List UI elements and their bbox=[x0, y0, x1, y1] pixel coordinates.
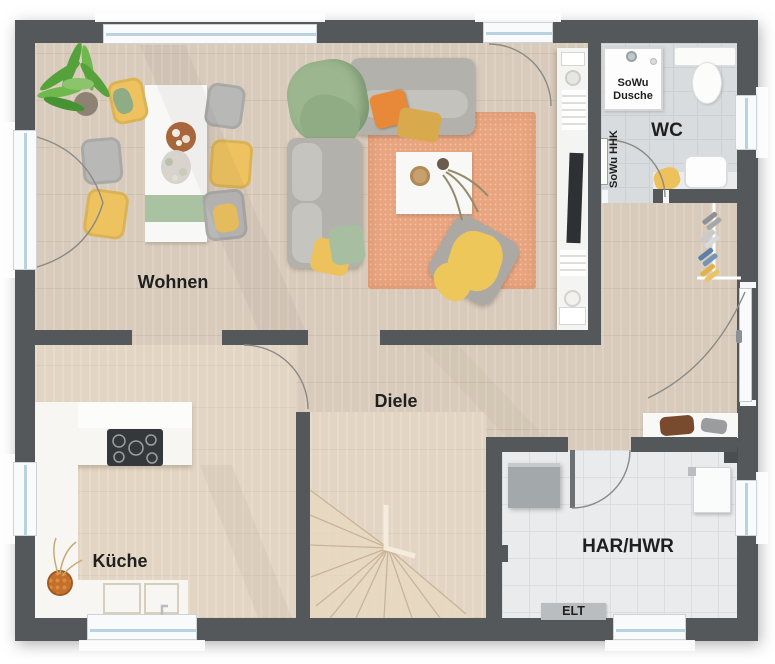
wall-har-north-b bbox=[631, 437, 737, 452]
window-right-har bbox=[735, 480, 757, 536]
shower-head-icon bbox=[626, 51, 637, 62]
wall-wohnen-south-b bbox=[222, 330, 308, 345]
har-door-leaf bbox=[570, 450, 575, 508]
window-right-wc bbox=[735, 95, 757, 150]
sofa-cushion bbox=[292, 143, 322, 201]
kitchen-base-unit bbox=[103, 583, 141, 614]
washing-machine bbox=[508, 463, 560, 508]
floor-stair-zone bbox=[310, 412, 486, 618]
door-jamb bbox=[602, 190, 608, 203]
entry-bag bbox=[659, 415, 695, 437]
wall-wohnen-south-c bbox=[380, 330, 601, 345]
sideboard-bowl bbox=[565, 70, 581, 86]
window-sill bbox=[605, 640, 695, 651]
room-label-kueche: Küche bbox=[70, 551, 170, 572]
annotation-elt: ELT bbox=[541, 604, 606, 618]
annotation-sowu-dusche: SoWu Dusche bbox=[603, 77, 663, 103]
window-sill bbox=[475, 12, 561, 22]
window-top-living bbox=[103, 24, 317, 44]
wall-wc-west bbox=[588, 43, 601, 345]
window-sill bbox=[79, 640, 205, 651]
sideboard-box bbox=[559, 307, 586, 325]
sideboard-books bbox=[562, 90, 586, 130]
wall-stair-west bbox=[296, 412, 310, 618]
window-sill bbox=[756, 87, 768, 158]
window-sill bbox=[95, 12, 325, 22]
annotation-sowu-hhk: SoWu HHK bbox=[608, 128, 621, 190]
coffee-table bbox=[396, 152, 472, 214]
cooktop bbox=[107, 429, 163, 466]
dining-chair bbox=[203, 82, 247, 131]
window-sill bbox=[756, 472, 768, 544]
room-label-diele: Diele bbox=[346, 391, 446, 412]
window-bottom-har bbox=[613, 614, 686, 640]
boiler-unit bbox=[693, 467, 731, 513]
window-left-kitchen bbox=[13, 462, 37, 536]
shower-drain bbox=[650, 58, 657, 65]
kitchen-base-unit bbox=[144, 583, 179, 614]
dining-chair bbox=[82, 187, 130, 240]
wc-sink bbox=[684, 155, 728, 189]
chair-pillow-yellow bbox=[212, 202, 240, 234]
room-label-har-hwr: HAR/HWR bbox=[558, 536, 698, 558]
door-jamb bbox=[663, 190, 669, 203]
sofa-pillow-green bbox=[328, 224, 367, 266]
terrace-door-top bbox=[483, 22, 553, 43]
coffee-table-bowl bbox=[410, 166, 430, 186]
annotation-line: SoWu bbox=[618, 77, 649, 89]
sideboard-box bbox=[561, 52, 585, 66]
toilet-bowl bbox=[692, 62, 722, 104]
front-door-handle bbox=[736, 330, 742, 343]
wall-har-north-a bbox=[486, 437, 568, 452]
sideboard-bowl bbox=[564, 290, 581, 307]
dining-chair bbox=[80, 136, 124, 185]
wall-wohnen-south-a bbox=[35, 330, 132, 345]
floorplan-canvas: Wohnen Diele Küche WC HAR/HWR SoWu Dusch… bbox=[0, 0, 775, 664]
coffee-table-pot bbox=[437, 158, 449, 170]
front-door-leaf bbox=[739, 288, 752, 402]
sideboard-books bbox=[560, 250, 586, 276]
room-label-wohnen: Wohnen bbox=[123, 272, 223, 293]
boiler-tab bbox=[688, 467, 696, 476]
fruit-bowl bbox=[47, 570, 73, 596]
wall-har-west bbox=[486, 440, 502, 618]
dining-chair bbox=[208, 139, 253, 190]
french-door-left bbox=[13, 130, 37, 270]
window-bottom-kitchen bbox=[87, 614, 197, 640]
table-runner bbox=[145, 195, 207, 222]
room-label-wc: WC bbox=[637, 120, 697, 142]
annotation-line: Dusche bbox=[613, 90, 653, 102]
